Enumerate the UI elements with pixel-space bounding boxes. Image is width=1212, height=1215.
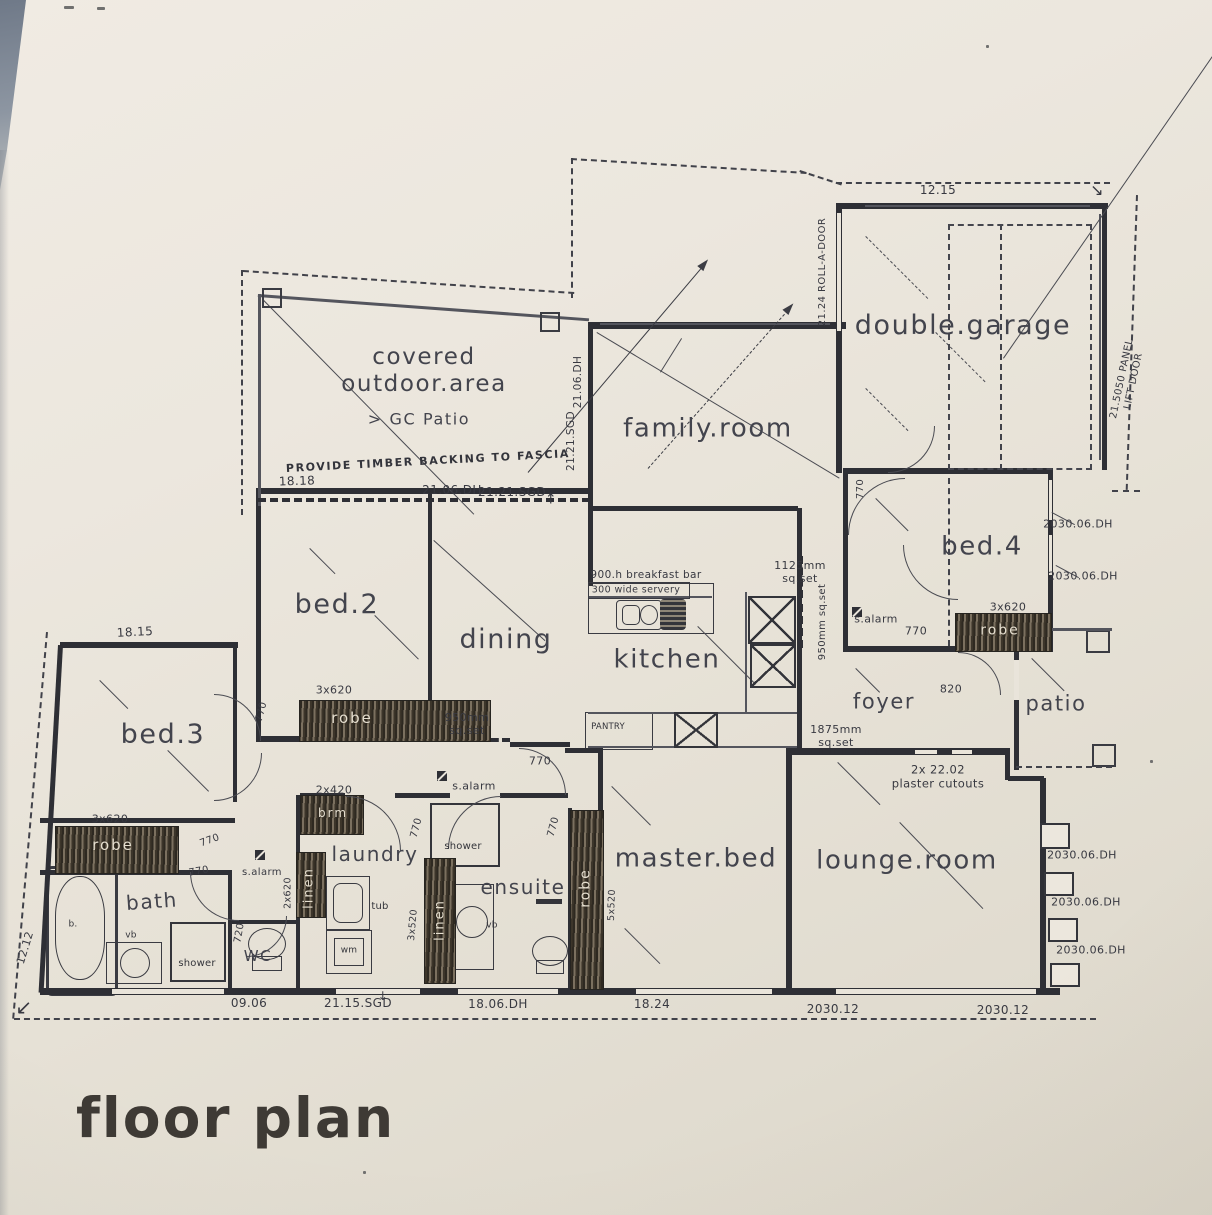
window-tab — [1040, 823, 1070, 849]
window-tab — [1048, 918, 1078, 942]
dim-5x520: 5x520 — [606, 889, 618, 921]
door-swing-arc — [214, 753, 262, 801]
post-marker — [540, 312, 560, 332]
linen-ensuite: linen — [432, 899, 447, 941]
page-edge-shadow — [0, 150, 9, 1215]
bath-tub-inner — [55, 876, 105, 980]
dim-2x420: 2x420 — [316, 785, 353, 798]
crossed-cabinet-box — [674, 712, 718, 748]
room-garage: double.garage — [855, 310, 1071, 342]
dim-1815: 18.15 — [116, 624, 153, 640]
dim-3x520: 3x520 — [406, 909, 420, 942]
label-salarm-bed3: s.alarm — [242, 867, 282, 879]
dim-950-sqset-vert: 950mm sq.set — [817, 584, 829, 661]
label-shower-bath: shower — [178, 958, 215, 970]
crossed-cabinet-box — [750, 644, 796, 688]
room-bed2: bed.2 — [295, 589, 380, 621]
dim-950-sqset-dining: 950mm sq.set — [445, 712, 489, 738]
room-dining: dining — [459, 624, 552, 656]
window-opening — [636, 989, 772, 994]
diagonal-line — [837, 762, 880, 805]
wall-segment — [786, 748, 792, 990]
dashed-boundary — [243, 270, 574, 294]
thin-wall — [258, 294, 261, 506]
thin-wall — [600, 323, 830, 325]
label-tub: tub — [371, 901, 388, 913]
dim-roll-a-door: 21.24 ROLL-A-DOOR — [817, 218, 829, 326]
dim-203012-b: 2030.12 — [977, 1003, 1029, 1017]
label-salarm-hall: s.alarm — [452, 781, 496, 794]
paper-speck — [363, 1171, 366, 1174]
cooktop — [660, 599, 686, 630]
dim-2x620: 2x620 — [282, 877, 293, 909]
room-bed4: bed.4 — [941, 532, 1023, 563]
diagonal-line — [596, 332, 839, 479]
page-title: floor plan — [76, 1086, 395, 1151]
dim-770-laundry: 770 — [409, 817, 426, 840]
window-opening — [836, 989, 1036, 994]
robe-bed2: robe — [331, 710, 373, 728]
room-ensuite: ensuite — [481, 876, 566, 900]
floor-plan-photo: floor plan covered outdoor.area> GC Pati… — [0, 0, 1212, 1215]
dashed-boundary — [836, 182, 1110, 184]
wall-segment — [1008, 776, 1044, 781]
label-bath-b: b. — [69, 920, 78, 931]
label-gc-patio: > GC Patio — [368, 411, 470, 430]
dim-1125-sqset: 1125mm sq.set — [774, 560, 826, 586]
room-laundry: laundry — [331, 843, 418, 867]
room-wc: WC — [244, 948, 273, 966]
dim-2030-lounge-2: 2030.06.DH — [1051, 897, 1121, 910]
window-opening — [112, 989, 224, 994]
wall-segment — [843, 646, 961, 652]
dashed-boundary — [799, 170, 841, 185]
dim-770-foyer: 770 — [905, 626, 927, 639]
dim-1215: 12.15 — [920, 183, 956, 197]
label-salarm-foyer: s.alarm — [854, 614, 898, 627]
dashed-boundary — [241, 270, 243, 515]
robe-master: robe — [578, 868, 595, 908]
room-bed3: bed.3 — [121, 719, 206, 751]
label-wm: wm — [341, 946, 358, 957]
diagonal-line — [167, 750, 209, 792]
sink-bowl-2 — [640, 605, 658, 625]
dim-panel-lift-door: 21.5050 PANEL LIFT DOOR — [1108, 336, 1149, 423]
thin-wall — [1099, 214, 1101, 460]
window-tab — [1044, 872, 1074, 896]
dim-1806dh: 18.06.DH — [468, 997, 528, 1011]
thin-wall — [865, 205, 1090, 207]
arrow-corner-garage: ↘ — [1090, 182, 1104, 201]
wall-segment — [588, 506, 798, 511]
robe-bed3: robe — [92, 837, 134, 855]
dim-820: 820 — [940, 684, 962, 697]
dim-2106dh-vert: 21.06.DH — [572, 356, 584, 409]
dim-2121sgd-vert: 21.21.SGD — [565, 411, 577, 471]
ensuite-cistern — [536, 960, 564, 974]
bath-basin — [120, 948, 150, 978]
dim-770-bed3: 770 — [198, 832, 221, 850]
post-marker — [262, 288, 282, 308]
dim-1818: 18.18 — [279, 473, 316, 488]
label-vb-ensuite: vb — [486, 921, 497, 932]
diagonal-line — [309, 548, 335, 574]
dashed-wall-opening — [800, 750, 888, 754]
dim-2030-bed4-1: 2030.06.DH — [1043, 519, 1113, 532]
kitchen-bench-right-edge — [745, 592, 747, 712]
dim-2121sgd-bottom: 21.21.SGD — [478, 485, 546, 499]
window-opening — [1049, 480, 1052, 520]
patio-post-1 — [1086, 630, 1110, 653]
room-patio: patio — [1025, 692, 1086, 717]
diagonal-line — [660, 338, 682, 372]
dashed-wall-opening — [799, 604, 803, 648]
dim-3x620-bed2: 3x620 — [316, 685, 353, 698]
diagonal-line — [865, 236, 928, 299]
dim-1212: 12.12 — [15, 930, 37, 966]
patio-post-2 — [1092, 744, 1116, 767]
door-swing-arc — [190, 872, 239, 921]
dim-770-garage: 770 — [855, 479, 867, 499]
dim-2030-lounge-1: 2030.06.DH — [1047, 850, 1117, 863]
door-swing-arc — [958, 652, 1001, 695]
arrow-corner-bottom-left: ↙ — [15, 996, 32, 1020]
robe-bed4: robe — [980, 623, 1020, 640]
arrow-down-laundry: ↓ — [378, 989, 388, 1003]
room-family: family.room — [623, 414, 793, 445]
dashed-boundary — [14, 1018, 1096, 1020]
dim-1875-sqset: 1875mm sq.set — [810, 724, 862, 750]
dashed-boundary — [571, 158, 573, 298]
dim-203012-a: 2030.12 — [807, 1002, 859, 1016]
label-brm: brm — [318, 806, 348, 820]
wall-segment — [395, 793, 450, 798]
dim-770-ensuite: 770 — [546, 816, 563, 839]
dim-2030-bed4-2: 2030.06.DH — [1048, 571, 1118, 584]
paper-speck — [1150, 760, 1153, 763]
window-tab — [1050, 963, 1080, 987]
dim-2030-lounge-3: 2030.06.DH — [1056, 945, 1126, 958]
diagonal-line — [624, 928, 660, 964]
crossed-cabinet-box — [748, 596, 796, 644]
room-lounge: lounge.room — [816, 846, 998, 877]
label-vb-bath: vb — [125, 931, 136, 942]
paper-speck — [986, 45, 989, 48]
wall-segment — [1102, 206, 1107, 470]
sink-bowl-1 — [622, 605, 640, 625]
smoke-alarm-icon — [437, 771, 447, 781]
label-shower-ensuite: shower — [444, 841, 481, 853]
paper-speck — [97, 7, 105, 10]
room-foyer: foyer — [853, 690, 915, 715]
note-plaster-cutouts: 2x 22.02 plaster cutouts — [892, 763, 984, 790]
wall-segment — [588, 326, 593, 586]
room-bath: bath — [125, 888, 178, 915]
window-opening — [837, 213, 841, 331]
note-breakfast-bar: 900.h breakfast bar — [590, 569, 701, 581]
wall-segment — [843, 470, 848, 652]
window-opening — [458, 989, 558, 994]
dashed-boundary — [571, 158, 807, 174]
diagonal-line — [865, 388, 908, 431]
dim-3x620-bed3: 3x620 — [92, 814, 129, 827]
arrow-line — [648, 306, 792, 468]
bath-shower — [170, 922, 226, 982]
window-opening — [952, 750, 972, 754]
smoke-alarm-icon — [255, 850, 265, 860]
diagonal-line — [611, 786, 651, 826]
laundry-tub-inner — [333, 883, 363, 923]
diagonal-line — [1031, 658, 1064, 691]
room-covered-outdoor: covered outdoor.area — [341, 344, 507, 398]
wall-segment — [510, 742, 570, 747]
door-swing-arc — [888, 426, 935, 473]
room-kitchen: kitchen — [614, 645, 721, 676]
window-opening — [1014, 660, 1019, 700]
wall-segment — [40, 818, 235, 823]
servery-note-box — [588, 582, 690, 599]
ensuite-basin — [456, 906, 488, 938]
wall-segment — [60, 642, 238, 648]
linen-wc: linen — [301, 867, 316, 909]
dim-2106dh-bottom: 21.06.DH — [422, 483, 482, 497]
arrow-up-covered: ↑ — [545, 492, 557, 509]
paper-speck — [64, 6, 74, 9]
dim-770-hall: 770 — [529, 756, 551, 769]
diagonal-line — [99, 680, 128, 709]
dim-1824: 18.24 — [634, 997, 670, 1011]
diagonal-line — [374, 615, 419, 660]
dashed-boundary — [1016, 766, 1112, 768]
dashed-boundary — [1112, 490, 1140, 492]
dim-3x620-bed4: 3x620 — [990, 602, 1027, 615]
room-master: master.bed — [615, 844, 778, 875]
label-pantry: PANTRY — [591, 722, 625, 732]
dim-0906: 09.06 — [231, 996, 267, 1010]
window-opening — [915, 750, 937, 754]
